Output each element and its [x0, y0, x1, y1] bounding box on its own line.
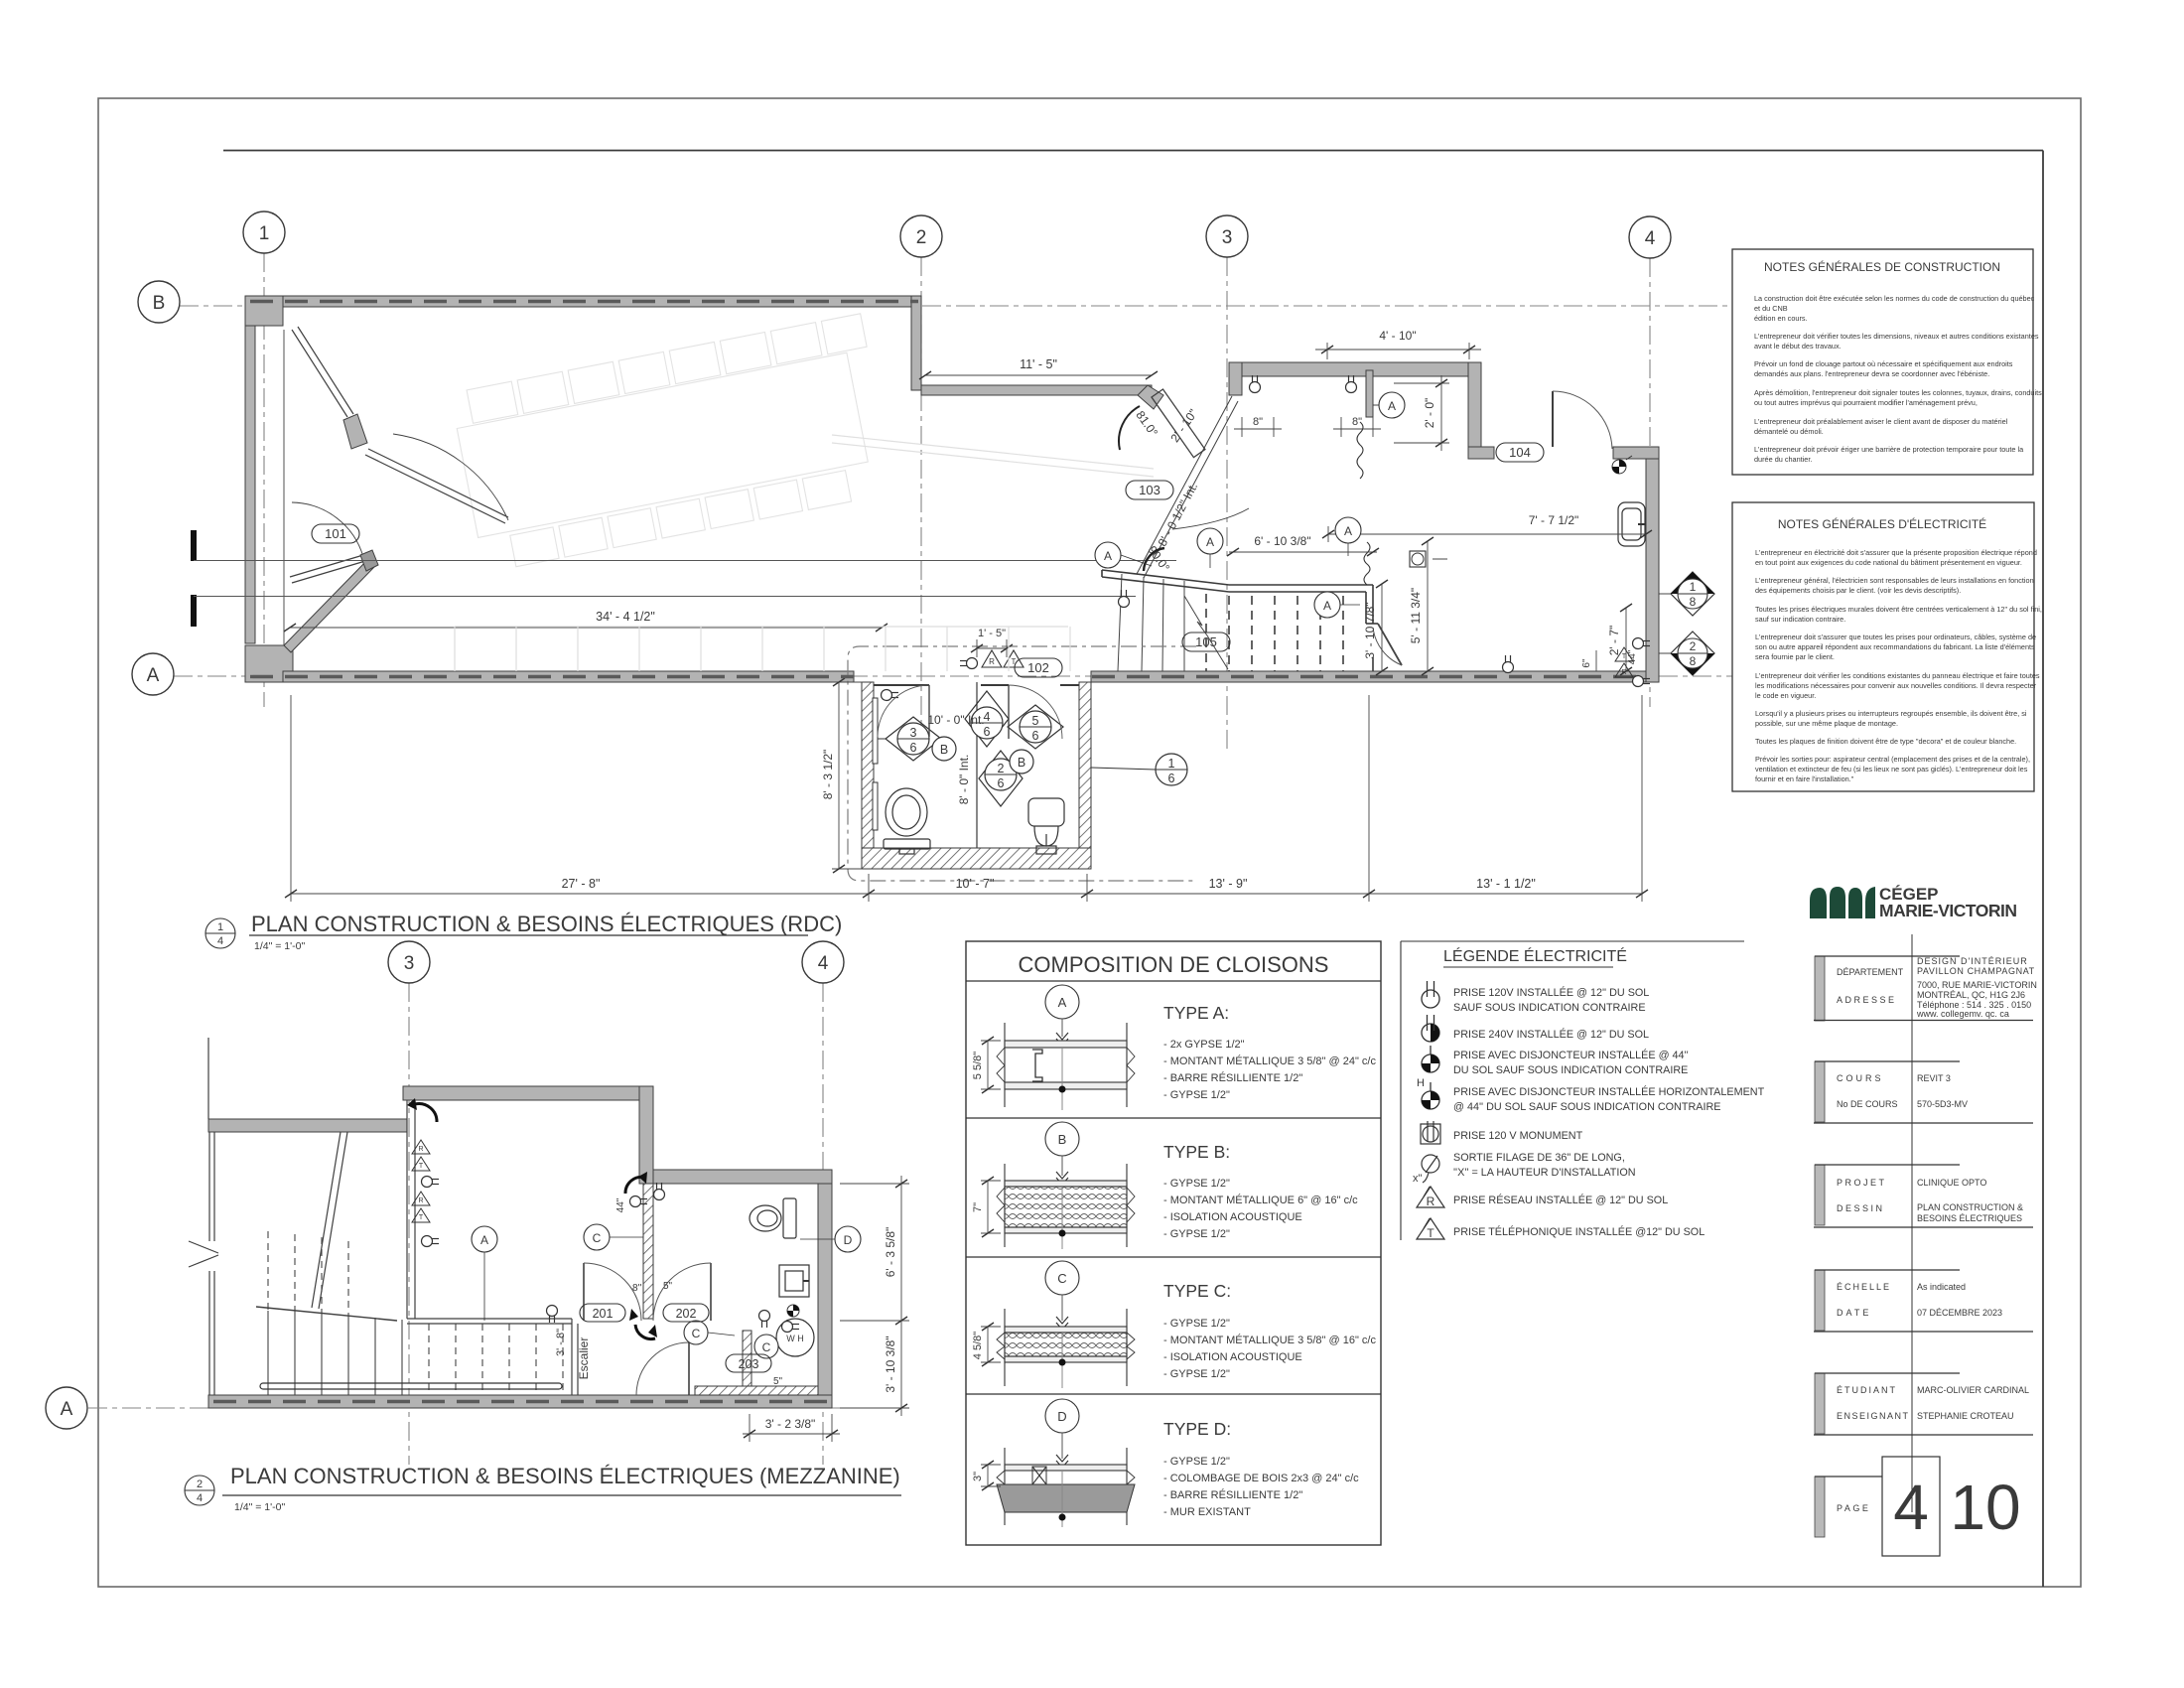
svg-text:No DE COURS: No DE COURS	[1837, 1099, 1898, 1109]
svg-text:A: A	[1388, 399, 1396, 413]
svg-text:6' - 3 5/8": 6' - 3 5/8"	[884, 1227, 897, 1278]
svg-text:demandés aux plans. l'entrepre: demandés aux plans. l'entrepreneur devra…	[1754, 369, 1989, 378]
svg-text:L'entrepreneur doit s'assurer: L'entrepreneur doit s'assurer que toutes…	[1755, 633, 2036, 641]
svg-text:203: 203	[739, 1357, 759, 1371]
svg-text:édition en cours.: édition en cours.	[1754, 314, 1808, 323]
svg-text:- MUR EXISTANT: - MUR EXISTANT	[1163, 1506, 1251, 1518]
svg-text:104: 104	[1509, 445, 1531, 460]
svg-text:- MONTANT MÉTALLIQUE 3 5/8" @: - MONTANT MÉTALLIQUE 3 5/8" @ 24" c/c	[1163, 1055, 1376, 1067]
svg-text:L'entrepreneur général, l'élec: L'entrepreneur général, l'électricien so…	[1755, 576, 2034, 585]
svg-text:A: A	[1206, 535, 1214, 549]
svg-text:As indicated: As indicated	[1917, 1282, 1966, 1292]
svg-text:ventilation et extincteur de f: ventilation et extincteur de feu (si les…	[1755, 765, 2028, 774]
svg-text:7000, RUE MARIE-VICTORIN: 7000, RUE MARIE-VICTORIN	[1917, 980, 2037, 990]
svg-text:- 2x GYPSE 1/2": - 2x GYPSE 1/2"	[1163, 1039, 1245, 1051]
svg-text:B: B	[1018, 756, 1025, 770]
svg-text:2' - 7": 2' - 7"	[1607, 626, 1621, 656]
svg-text:Prévoir un fond de clouage par: Prévoir un fond de clouage partout où né…	[1754, 359, 2013, 368]
svg-text:4' - 10": 4' - 10"	[1379, 329, 1416, 343]
svg-text:1/4" = 1'-0": 1/4" = 1'-0"	[234, 1501, 285, 1513]
svg-text:5' - 11 3/4": 5' - 11 3/4"	[1409, 588, 1423, 643]
svg-text:R: R	[989, 657, 995, 666]
svg-text:5": 5"	[773, 1376, 783, 1387]
svg-text:T: T	[1427, 1226, 1434, 1240]
svg-text:202: 202	[676, 1307, 697, 1321]
svg-text:201: 201	[593, 1307, 614, 1321]
svg-text:8: 8	[1690, 595, 1697, 609]
svg-text:A: A	[61, 1399, 73, 1420]
svg-text:TYPE D:: TYPE D:	[1163, 1419, 1231, 1439]
svg-text:1: 1	[1690, 580, 1697, 594]
svg-text:MONTRÉAL, QC, H1G 2J6: MONTRÉAL, QC, H1G 2J6	[1917, 990, 2025, 1000]
svg-text:MARIE-VICTORIN: MARIE-VICTORIN	[1879, 901, 2017, 920]
svg-text:- ISOLATION ACOUSTIQUE: - ISOLATION ACOUSTIQUE	[1163, 1351, 1302, 1363]
svg-text:1: 1	[217, 921, 223, 933]
svg-text:@ 44'' DU SOL SAUF SOUS INDICA: @ 44'' DU SOL SAUF SOUS INDICATION CONTR…	[1453, 1101, 1720, 1113]
svg-text:DU SOL SAUF SOUS INDICATION CO: DU SOL SAUF SOUS INDICATION CONTRAIRE	[1453, 1064, 1688, 1076]
svg-text:ENSEIGNANT: ENSEIGNANT	[1837, 1411, 1910, 1421]
svg-text:Escalier: Escalier	[577, 1337, 591, 1380]
svg-text:Toutes les prises électriques: Toutes les prises électriques murales do…	[1755, 605, 2042, 614]
svg-text:DESSIN: DESSIN	[1837, 1203, 1885, 1213]
svg-text:son ou autre appareil réponden: son ou autre appareil répondent aux reco…	[1755, 642, 2035, 651]
svg-text:4: 4	[818, 953, 829, 974]
svg-text:3: 3	[1222, 227, 1233, 248]
svg-text:PROJET: PROJET	[1837, 1178, 1887, 1188]
svg-text:PRISE 120 V MONUMENT: PRISE 120 V MONUMENT	[1453, 1130, 1583, 1142]
svg-text:MARC-OLIVIER CARDINAL: MARC-OLIVIER CARDINAL	[1917, 1385, 2029, 1395]
svg-text:L'entrepreneur en électricité: L'entrepreneur en électricité doit s'ass…	[1755, 548, 2037, 557]
svg-text:5 5/8": 5 5/8"	[972, 1052, 984, 1079]
svg-text:x": x"	[1413, 1173, 1423, 1185]
svg-text:4: 4	[197, 1492, 203, 1504]
svg-text:A: A	[1323, 599, 1331, 613]
svg-text:PRISE AVEC DISJONCTEUR INSTALL: PRISE AVEC DISJONCTEUR INSTALLÉE HORIZON…	[1453, 1085, 1765, 1098]
svg-text:T: T	[1622, 653, 1627, 660]
svg-text:NOTES GÉNÉRALES DE CONSTRUCTIO: NOTES GÉNÉRALES DE CONSTRUCTION	[1764, 259, 2000, 274]
svg-text:L'entrepreneur doit prévoir ér: L'entrepreneur doit prévoir ériger une b…	[1754, 445, 2024, 454]
svg-text:D: D	[844, 1233, 853, 1247]
svg-text:10' - 7": 10' - 7"	[956, 877, 995, 891]
svg-text:et du CNB: et du CNB	[1754, 304, 1788, 313]
svg-text:7": 7"	[972, 1202, 984, 1212]
svg-text:5": 5"	[663, 1281, 673, 1292]
svg-text:- GYPSE 1/2": - GYPSE 1/2"	[1163, 1089, 1230, 1101]
svg-text:A: A	[1344, 524, 1352, 538]
svg-text:13' - 9": 13' - 9"	[1209, 877, 1248, 891]
svg-text:102: 102	[1027, 660, 1049, 675]
svg-text:T: T	[419, 1214, 424, 1221]
svg-text:PRISE RÉSEAU INSTALLÉE @ 12": PRISE RÉSEAU INSTALLÉE @ 12" DU SOL	[1453, 1194, 1668, 1206]
svg-text:COMPOSITION DE CLOISONS: COMPOSITION DE CLOISONS	[1019, 952, 1329, 977]
svg-text:Lorsqu'il y a plusieurs prises: Lorsqu'il y a plusieurs prises ou interr…	[1755, 709, 2027, 718]
svg-text:BESOINS ÉLECTRIQUES: BESOINS ÉLECTRIQUES	[1917, 1213, 2022, 1223]
svg-text:PRISE 240V INSTALLÉE @ 12" DU: PRISE 240V INSTALLÉE @ 12" DU SOL	[1453, 1028, 1649, 1041]
svg-text:T: T	[1012, 657, 1017, 666]
svg-text:DÉPARTEMENT: DÉPARTEMENT	[1837, 967, 1904, 977]
svg-text:- GYPSE 1/2": - GYPSE 1/2"	[1163, 1456, 1230, 1468]
svg-text:6: 6	[1032, 729, 1039, 743]
svg-text:- ISOLATION ACOUSTIQUE: - ISOLATION ACOUSTIQUE	[1163, 1211, 1302, 1223]
svg-text:1' - 5": 1' - 5"	[978, 628, 1006, 639]
svg-text:3: 3	[910, 726, 917, 740]
svg-text:- BARRE RÉSILLIENTE 1/2": - BARRE RÉSILLIENTE 1/2"	[1163, 1488, 1302, 1501]
svg-text:2: 2	[1690, 639, 1697, 653]
svg-text:34' - 4 1/2": 34' - 4 1/2"	[596, 610, 655, 624]
svg-text:REVIT 3: REVIT 3	[1917, 1073, 1951, 1083]
svg-text:DATE: DATE	[1837, 1308, 1871, 1318]
svg-text:8: 8	[1690, 654, 1697, 668]
svg-text:R: R	[418, 1197, 423, 1204]
svg-text:- MONTANT MÉTALLIQUE 3 5/8" @: - MONTANT MÉTALLIQUE 3 5/8" @ 16" c/c	[1163, 1334, 1376, 1346]
svg-text:PLAN CONSTRUCTION &: PLAN CONSTRUCTION &	[1917, 1202, 2023, 1212]
svg-text:A: A	[480, 1233, 488, 1247]
svg-text:DESIGN D'INTÉRIEUR: DESIGN D'INTÉRIEUR	[1917, 956, 2028, 966]
svg-text:PLAN CONSTRUCTION & BESOINS ÉL: PLAN CONSTRUCTION & BESOINS ÉLECTRIQUES …	[230, 1464, 900, 1488]
svg-text:- GYPSE 1/2": - GYPSE 1/2"	[1163, 1228, 1230, 1240]
svg-text:- COLOMBAGE DE BOIS 2x3 @ 24": - COLOMBAGE DE BOIS 2x3 @ 24" c/c	[1163, 1473, 1359, 1484]
svg-text:- GYPSE 1/2": - GYPSE 1/2"	[1163, 1368, 1230, 1380]
svg-text:2: 2	[197, 1478, 203, 1490]
svg-text:TYPE B:: TYPE B:	[1163, 1142, 1230, 1162]
svg-text:A: A	[1104, 549, 1112, 563]
svg-text:1: 1	[1168, 757, 1175, 771]
svg-text:en tout point aux exigences du: en tout point aux exigences du code nati…	[1755, 558, 2022, 567]
svg-text:44": 44"	[615, 1197, 626, 1212]
svg-text:11' - 5": 11' - 5"	[1020, 357, 1057, 371]
svg-text:les modifications nécessaires: les modifications nécessaires pour conve…	[1755, 681, 2037, 690]
svg-text:PLAN CONSTRUCTION & BESOINS ÉL: PLAN CONSTRUCTION & BESOINS ÉLECTRIQUES …	[251, 912, 842, 936]
svg-text:105: 105	[1195, 634, 1217, 649]
svg-text:R: R	[1427, 1195, 1435, 1208]
svg-text:ÉTUDIANT: ÉTUDIANT	[1837, 1385, 1897, 1395]
svg-text:sauf sur indication contraire.: sauf sur indication contraire.	[1755, 615, 1845, 624]
svg-text:H: H	[1417, 1077, 1425, 1089]
svg-text:possible, sur une même plaque: possible, sur une même plaque de montage…	[1755, 719, 1898, 728]
svg-text:B: B	[153, 293, 166, 314]
svg-text:''X'' = LA HAUTEUR D'INSTALLAT: ''X'' = LA HAUTEUR D'INSTALLATION	[1453, 1167, 1636, 1179]
svg-text:C: C	[762, 1340, 771, 1354]
svg-text:T: T	[419, 1163, 424, 1170]
svg-text:3' - 10 3/8": 3' - 10 3/8"	[884, 1336, 897, 1392]
svg-text:www. collegemv. qc. ca: www. collegemv. qc. ca	[1916, 1009, 2009, 1019]
svg-text:fournir et en faire l'installa: fournir et en faire l'installation."	[1755, 774, 1854, 783]
svg-text:Après démolition, l'entreprene: Après démolition, l'entrepreneur doit si…	[1754, 388, 2042, 397]
svg-text:570-5D3-MV: 570-5D3-MV	[1917, 1099, 1968, 1109]
svg-text:2: 2	[998, 762, 1005, 775]
svg-text:10' - 0" Int.: 10' - 0" Int.	[927, 713, 984, 727]
svg-text:L'entrepreneur doit préalablem: L'entrepreneur doit préalablement aviser…	[1754, 417, 2008, 426]
svg-text:C: C	[593, 1231, 602, 1245]
svg-text:STEPHANIE CROTEAU: STEPHANIE CROTEAU	[1917, 1411, 2014, 1421]
svg-text:ou tout autres imprévus qui po: ou tout autres imprévus qui pourraient m…	[1754, 398, 1978, 407]
svg-text:NOTES GÉNÉRALES D'ÉLECTRICITÉ: NOTES GÉNÉRALES D'ÉLECTRICITÉ	[1778, 516, 1986, 531]
svg-text:PAVILLON CHAMPAGNAT: PAVILLON CHAMPAGNAT	[1917, 966, 2035, 976]
svg-text:3' - 2 3/8": 3' - 2 3/8"	[765, 1417, 816, 1431]
svg-text:R: R	[418, 1146, 423, 1153]
svg-text:sera fournie par le client.: sera fournie par le client.	[1755, 652, 1835, 661]
svg-text:PRISE 120V INSTALLÉE @ 12'' DU: PRISE 120V INSTALLÉE @ 12'' DU SOL	[1453, 986, 1649, 999]
svg-text:avant le début des travaux.: avant le début des travaux.	[1754, 342, 1842, 351]
svg-text:2' - 0": 2' - 0"	[1423, 398, 1436, 429]
svg-text:ÉCHELLE: ÉCHELLE	[1837, 1282, 1891, 1292]
svg-text:A: A	[1058, 995, 1067, 1010]
svg-text:3: 3	[404, 953, 415, 974]
svg-text:8'': 8''	[632, 1283, 641, 1294]
svg-text:103: 103	[1139, 483, 1160, 497]
svg-text:Prévoir les sorties pour: aspi: Prévoir les sorties pour: aspirateur cen…	[1755, 755, 2030, 764]
svg-text:2: 2	[916, 227, 927, 248]
svg-text:CLINIQUE OPTO: CLINIQUE OPTO	[1917, 1178, 1986, 1188]
svg-text:L'entrepreneur doit vérifier l: L'entrepreneur doit vérifier les conditi…	[1755, 671, 2040, 680]
svg-text:- MONTANT MÉTALLIQUE 6" @ 16": - MONTANT MÉTALLIQUE 6" @ 16" c/c	[1163, 1194, 1358, 1206]
svg-text:3' - 10 7/8": 3' - 10 7/8"	[1363, 602, 1377, 658]
svg-text:COURS: COURS	[1837, 1073, 1884, 1083]
svg-text:6: 6	[1168, 772, 1175, 785]
svg-text:SORTIE FILAGE DE 36" DE LONG,: SORTIE FILAGE DE 36" DE LONG,	[1453, 1152, 1625, 1164]
svg-text:R: R	[1621, 669, 1626, 676]
svg-text:6' - 10 3/8": 6' - 10 3/8"	[1254, 534, 1310, 548]
svg-text:3' - 8": 3' - 8"	[555, 1329, 567, 1356]
svg-text:D: D	[1057, 1409, 1066, 1424]
svg-text:1/4" = 1'-0": 1/4" = 1'-0"	[254, 940, 305, 952]
svg-text:L'entrepreneur doit vérifier t: L'entrepreneur doit vérifier toutes les …	[1754, 332, 2039, 341]
svg-text:B: B	[940, 743, 948, 757]
svg-text:6: 6	[984, 725, 991, 739]
svg-text:5: 5	[1032, 714, 1039, 728]
svg-text:Toutes les plaques de finition: Toutes les plaques de finition doivent ê…	[1755, 737, 2016, 746]
svg-text:6: 6	[998, 776, 1005, 790]
svg-text:1: 1	[259, 223, 270, 244]
svg-text:6: 6	[910, 741, 917, 755]
svg-text:4: 4	[1645, 228, 1656, 249]
svg-text:6": 6"	[1581, 658, 1592, 668]
svg-text:B: B	[1058, 1132, 1067, 1147]
svg-text:TYPE C:: TYPE C:	[1163, 1281, 1231, 1301]
svg-text:4: 4	[217, 935, 223, 947]
svg-text:C: C	[692, 1327, 701, 1340]
svg-text:8": 8"	[1253, 416, 1263, 428]
svg-text:- BARRE RÉSILLIENTE 1/2": - BARRE RÉSILLIENTE 1/2"	[1163, 1071, 1302, 1084]
svg-text:- GYPSE 1/2": - GYPSE 1/2"	[1163, 1178, 1230, 1190]
svg-text:8' - 3 1/2": 8' - 3 1/2"	[821, 750, 835, 800]
svg-text:SAUF SOUS INDICATION CONTRAIRE: SAUF SOUS INDICATION CONTRAIRE	[1453, 1002, 1646, 1014]
svg-text:LÉGENDE ÉLECTRICITÉ: LÉGENDE ÉLECTRICITÉ	[1443, 946, 1627, 965]
svg-text:3": 3"	[972, 1472, 984, 1481]
svg-text:PRISE TÉLÉPHONIQUE INSTALLÉE @: PRISE TÉLÉPHONIQUE INSTALLÉE @12" DU SOL	[1453, 1225, 1705, 1238]
svg-text:- GYPSE 1/2": - GYPSE 1/2"	[1163, 1318, 1230, 1330]
svg-text:ADRESSE: ADRESSE	[1837, 995, 1897, 1005]
svg-text:PRISE AVEC DISJONCTEUR INSTALL: PRISE AVEC DISJONCTEUR INSTALLÉE @ 44''	[1453, 1049, 1689, 1061]
svg-text:4: 4	[1893, 1472, 1929, 1543]
svg-text:07 DÉCEMBRE 2023: 07 DÉCEMBRE 2023	[1917, 1308, 2002, 1318]
svg-text:TYPE A:: TYPE A:	[1163, 1003, 1229, 1023]
svg-text:8' - 0" Int.: 8' - 0" Int.	[957, 755, 971, 805]
svg-text:10: 10	[1950, 1472, 2020, 1543]
svg-text:44": 44"	[1627, 649, 1638, 664]
svg-text:A: A	[147, 665, 160, 686]
svg-text:7' - 7 1/2": 7' - 7 1/2"	[1529, 513, 1579, 527]
svg-text:démantelé ou démoli.: démantelé ou démoli.	[1754, 427, 1824, 436]
svg-text:27' - 8": 27' - 8"	[562, 877, 601, 891]
svg-text:PAGE: PAGE	[1837, 1503, 1870, 1513]
svg-text:4 5/8": 4 5/8"	[972, 1332, 984, 1359]
svg-text:13' - 1 1/2": 13' - 1 1/2"	[1476, 877, 1536, 891]
svg-text:des équipements choisis par le: des équipements choisis par le client. (…	[1755, 586, 1961, 595]
svg-text:101: 101	[325, 526, 346, 541]
svg-text:C: C	[1057, 1271, 1066, 1286]
svg-text:La construction doit être exéc: La construction doit être exécutée selon…	[1754, 294, 2035, 303]
svg-text:W H: W H	[786, 1334, 804, 1343]
svg-text:le code en vigueur.: le code en vigueur.	[1755, 691, 1816, 700]
svg-text:durée du chantier.: durée du chantier.	[1754, 455, 1812, 464]
